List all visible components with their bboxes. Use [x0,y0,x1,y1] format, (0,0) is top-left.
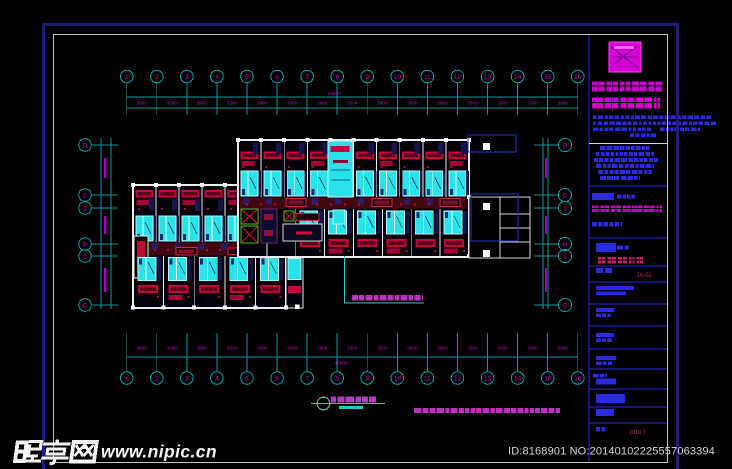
svg-text:3900: 3900 [437,101,448,106]
svg-text:16: 16 [574,74,582,81]
svg-text:www.nipic.cn: www.nipic.cn [101,442,217,462]
svg-text:3300: 3300 [407,101,418,106]
svg-text:D: D [563,142,568,149]
svg-text:13: 13 [484,74,492,81]
svg-text:C: C [563,192,568,199]
svg-text:5: 5 [245,74,249,81]
svg-text:4: 4 [215,74,219,81]
svg-text:15: 15 [544,375,552,382]
svg-text:3300: 3300 [467,346,478,351]
svg-text:3900: 3900 [558,346,569,351]
svg-text:11: 11 [424,375,431,382]
svg-text:B: B [563,241,567,248]
svg-text:B: B [83,241,87,248]
svg-text:C: C [83,302,88,309]
svg-text:13: 13 [484,375,492,382]
svg-text:6: 6 [275,74,279,81]
svg-text:3900: 3900 [377,346,388,351]
svg-text:3900: 3900 [137,346,148,351]
svg-text:4: 4 [215,375,219,382]
svg-text:2: 2 [83,253,87,260]
svg-text:3: 3 [185,375,189,382]
svg-text:8: 8 [335,74,339,81]
svg-text:10: 10 [394,375,402,382]
svg-text:3900: 3900 [317,101,328,106]
svg-text:2: 2 [155,74,159,81]
svg-text:7: 7 [305,375,309,382]
svg-text:3900: 3900 [257,346,268,351]
svg-text:3300: 3300 [227,346,238,351]
svg-text:ID:8168901 NO:2014010222555706: ID:8168901 NO:20140102225557063394 [508,446,715,458]
svg-text:3300: 3300 [347,101,358,106]
svg-text:C: C [563,302,568,309]
svg-text:2: 2 [155,375,159,382]
svg-text:3900: 3900 [558,101,569,106]
svg-text:9: 9 [365,74,369,81]
svg-text:12: 12 [454,375,462,382]
svg-text:JX-02: JX-02 [636,273,652,279]
svg-text:3900: 3900 [377,101,388,106]
svg-text:3300: 3300 [528,101,539,106]
svg-text:6: 6 [275,375,279,382]
svg-text:46900: 46900 [334,361,348,367]
svg-text:14: 14 [514,74,522,81]
svg-text:3300: 3300 [167,346,178,351]
svg-text:10: 10 [394,74,402,81]
svg-text:16: 16 [574,375,582,382]
svg-text:C: C [83,192,88,199]
svg-text:D: D [83,142,88,149]
svg-text:7: 7 [305,74,309,81]
svg-text:11: 11 [424,74,431,81]
svg-text:12: 12 [454,74,462,81]
svg-text:3300: 3300 [528,346,539,351]
svg-text:16500: 16500 [327,91,341,97]
svg-text:3300: 3300 [347,346,358,351]
svg-text:2: 2 [563,253,567,260]
svg-text:3: 3 [185,74,189,81]
svg-text:3900: 3900 [137,101,148,106]
svg-text:3300: 3300 [167,101,178,106]
svg-text:3900: 3900 [497,346,508,351]
svg-text:1: 1 [563,205,567,212]
svg-text:3300: 3300 [287,101,298,106]
svg-text:3900: 3900 [257,101,268,106]
svg-text:5: 5 [245,375,249,382]
svg-text:3900: 3900 [497,101,508,106]
svg-text:3900: 3900 [317,346,328,351]
svg-text:1: 1 [125,375,129,382]
svg-text:3900: 3900 [437,346,448,351]
svg-text:1: 1 [83,205,87,212]
svg-text:2010.7: 2010.7 [629,430,646,436]
svg-text:3300: 3300 [407,346,418,351]
svg-text:3300: 3300 [467,101,478,106]
svg-text:3900: 3900 [197,101,208,106]
svg-text:3300: 3300 [227,101,238,106]
svg-text:3900: 3900 [197,346,208,351]
svg-text:9: 9 [365,375,369,382]
svg-text:8: 8 [335,375,339,382]
svg-text:3300: 3300 [287,346,298,351]
svg-text:15: 15 [544,74,552,81]
svg-text:14: 14 [514,375,522,382]
svg-text:1: 1 [125,74,129,81]
